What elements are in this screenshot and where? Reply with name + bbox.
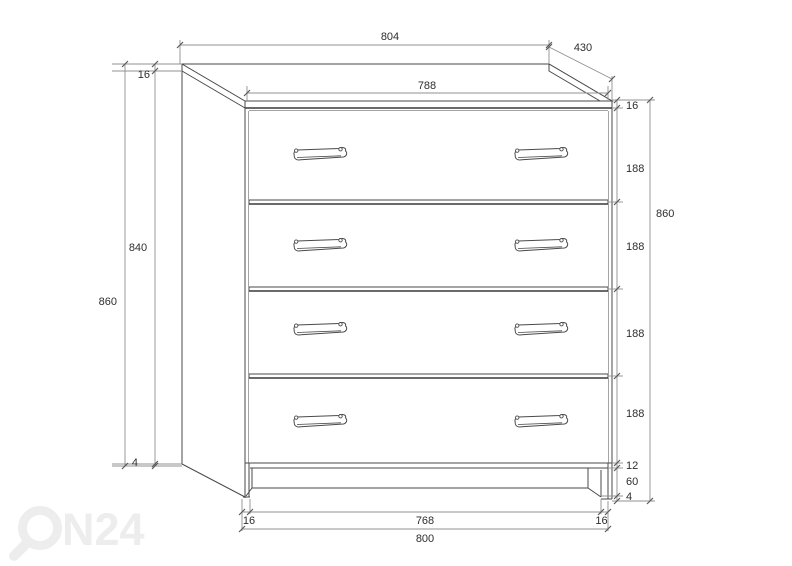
dim-bottom-rail-label: 12 xyxy=(626,460,638,472)
dim-bottom-right-side-label: 16 xyxy=(595,515,607,527)
dim-bottom-left-side-label: 16 xyxy=(243,515,255,527)
dim-inner-width-label: 788 xyxy=(418,80,436,92)
furniture-dimension-drawing: N24 xyxy=(0,0,792,566)
dresser-technical-drawing: N24 xyxy=(0,0,792,566)
dim-drawer3-label: 188 xyxy=(626,328,644,340)
dim-depth-label: 430 xyxy=(574,42,592,54)
dim-bottom-overall-label: 800 xyxy=(416,533,434,545)
dim-floor-gap-label: 4 xyxy=(626,491,632,503)
dim-left-bottom-label: 4 xyxy=(132,457,138,469)
dim-right-top-thickness-label: 16 xyxy=(626,100,638,112)
plinth-base xyxy=(243,463,612,499)
dim-drawer1-label: 188 xyxy=(626,163,644,175)
dim-plinth-label: 60 xyxy=(626,476,638,488)
dim-left-top-thickness-label: 16 xyxy=(138,69,150,81)
magnifier-handle-icon xyxy=(14,543,27,556)
on24-watermark: N24 xyxy=(14,504,145,556)
dim-right-overall-height-label: 860 xyxy=(656,208,674,220)
dim-left-overall-height-label: 860 xyxy=(99,296,117,308)
dim-bottom-inner-label: 768 xyxy=(416,515,434,527)
dim-drawer4-label: 188 xyxy=(626,408,644,420)
cabinet-body xyxy=(182,64,612,499)
top-panel xyxy=(182,64,612,108)
left-side-panel xyxy=(182,64,245,497)
dim-left-body-height-label: 840 xyxy=(129,242,147,254)
watermark-text: N24 xyxy=(62,504,145,555)
dim-drawer2-label: 188 xyxy=(626,241,644,253)
dim-top-width-label: 804 xyxy=(381,31,399,43)
